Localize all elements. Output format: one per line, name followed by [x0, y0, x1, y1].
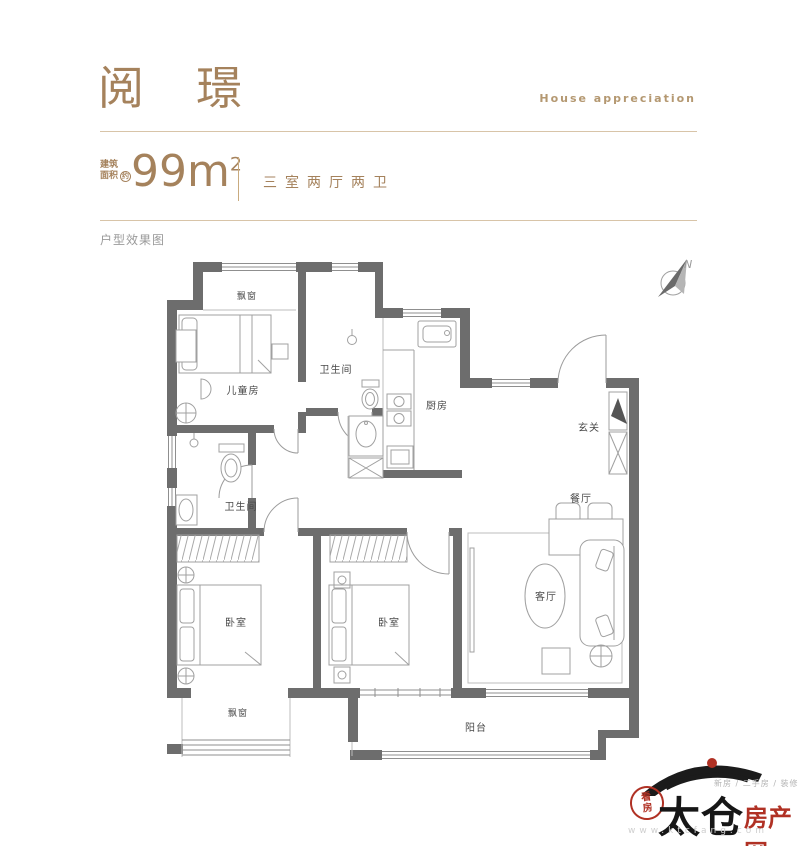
- entry-cabinet: [609, 392, 627, 474]
- room-label-dining: 餐厅: [570, 492, 592, 505]
- sofa: [580, 540, 624, 646]
- room-label-bedroom-middle: 卧室: [378, 616, 400, 629]
- floorplan-page: { "colors": { "accent": "#a5825c", "acce…: [0, 0, 800, 846]
- room-label-bathroom-lower: 卫生间: [225, 500, 258, 513]
- kitchen-appliance: [387, 446, 413, 468]
- bed-left: [177, 585, 261, 665]
- window-entry: [492, 378, 530, 388]
- watermark-url: www.ktcfang.com: [628, 826, 768, 836]
- window-balcony-bottom: [382, 750, 590, 760]
- window-living-balcony: [486, 688, 588, 698]
- room-label-entry: 玄关: [578, 421, 600, 434]
- window-bay-top: [222, 262, 296, 272]
- room-label-kids-room: 儿童房: [227, 384, 260, 397]
- floor-lamp: [590, 645, 612, 667]
- watermark-brand-red: 房产网: [744, 798, 800, 846]
- floorplan-drawing: N 飘窗 儿童房 卫生间 厨房 玄关 餐厅 客厅 卧室 卧室 卫生间 飘窗 阳台: [0, 0, 800, 846]
- window-bath-top: [332, 262, 358, 272]
- room-label-bay-bottom: 飘窗: [228, 707, 248, 719]
- window-kitchen: [403, 308, 441, 318]
- ceiling-light-left-2: [178, 668, 194, 684]
- compass-icon: N: [658, 258, 692, 297]
- room-label-bedroom-left: 卧室: [225, 616, 247, 629]
- room-label-bay-top: 飘窗: [237, 290, 257, 302]
- kids-ceiling-light: [176, 403, 196, 423]
- wardrobe-left: [177, 535, 259, 562]
- basin-lower: [176, 495, 197, 525]
- fan-symbol-middle-2: [334, 667, 350, 683]
- compass-north-label: N: [684, 258, 692, 271]
- shower-head-lower: [190, 433, 198, 447]
- kitchen-stove: [387, 394, 411, 426]
- kids-room-door: [274, 429, 298, 453]
- toilet-upper: [362, 380, 379, 409]
- shower-head-upper: [348, 329, 357, 345]
- ceiling-light-left-1: [178, 567, 194, 583]
- room-label-bathroom-upper: 卫生间: [320, 363, 353, 376]
- tv-console: [470, 548, 474, 652]
- entry-door: [558, 335, 606, 383]
- room-label-balcony: 阳台: [465, 721, 487, 734]
- room-label-living: 客厅: [535, 590, 557, 603]
- window-bay-bottom: [182, 698, 290, 757]
- coffee-table: [542, 648, 570, 674]
- sliding-door-balcony: [360, 688, 451, 697]
- kids-nightstand: [272, 344, 288, 359]
- bedroom-left-door: [264, 498, 298, 532]
- kids-desk: [176, 330, 196, 362]
- kitchen-sink: [418, 321, 456, 347]
- washing-machine: [349, 458, 383, 478]
- kids-chair: [201, 379, 211, 399]
- room-label-kitchen: 厨房: [426, 399, 448, 412]
- wardrobe-middle: [330, 535, 407, 562]
- bedroom-middle-door: [407, 532, 449, 574]
- window-left-wall-1: [167, 436, 177, 468]
- toilet-lower: [219, 444, 244, 482]
- site-watermark: 看房 新房 / 二手房 / 装修 太仓 房产网 www.ktcfang.com: [622, 750, 800, 846]
- vanity-upper: [349, 416, 383, 456]
